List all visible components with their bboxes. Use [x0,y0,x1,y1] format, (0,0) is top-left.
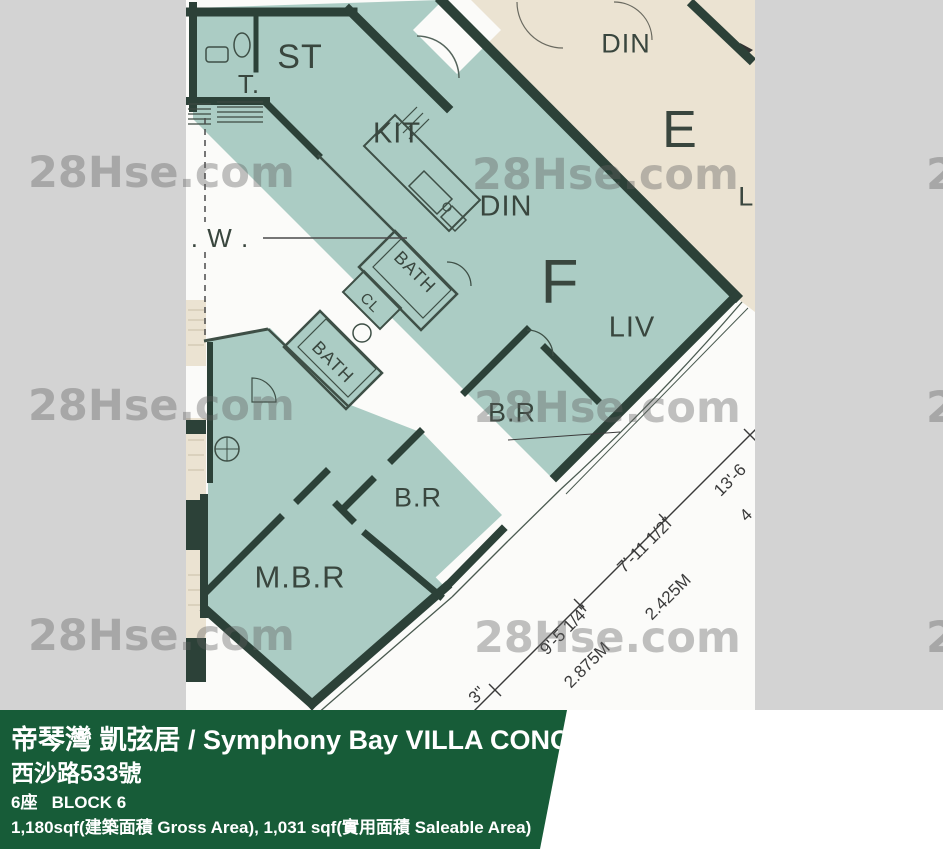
page: ST T. KIT DIN F LIV BATH CL BATH B.R B.R… [0,0,943,849]
room-label-st: ST [277,40,322,74]
room-label-mbr: M.B.R [254,562,345,593]
watermark: 28Hse.com [28,611,295,661]
unit-label-f: F [541,252,580,314]
estate-block: 6座 BLOCK 6 [11,788,126,813]
estate-area: 1,180sqf(建築面積 Gross Area), 1,031 sqf(實用面… [11,813,531,838]
estate-title: 帝琴灣 凱弦居 / Symphony Bay VILLA CONCERT [11,718,600,757]
watermark: 28Hse.com [926,150,943,200]
room-label-liv-f: LIV [609,314,656,343]
room-label-din-e: DIN [601,31,651,58]
room-label-liv-e: LIV [738,184,755,211]
watermark: 28Hse.com [926,613,943,663]
room-label-br-lower: B.R [394,485,442,512]
watermark: 28Hse.com [474,383,741,433]
watermark: 28Hse.com [472,150,739,200]
watermark: 28Hse.com [474,613,741,663]
watermark: 28Hse.com [28,148,295,198]
room-label-w: . W . [191,225,249,251]
watermark: 28Hse.com [926,383,943,433]
room-label-t: T. [238,71,260,97]
info-bar-green-panel: 帝琴灣 凱弦居 / Symphony Bay VILLA CONCERT 西沙路… [0,710,600,849]
floor-plan: ST T. KIT DIN F LIV BATH CL BATH B.R B.R… [186,0,755,710]
unit-label-e: E [662,104,698,156]
room-label-kit: KIT [373,120,421,149]
estate-address: 西沙路533號 [11,754,141,788]
watermark: 28Hse.com [28,381,295,431]
info-bar: 帝琴灣 凱弦居 / Symphony Bay VILLA CONCERT 西沙路… [0,710,943,849]
